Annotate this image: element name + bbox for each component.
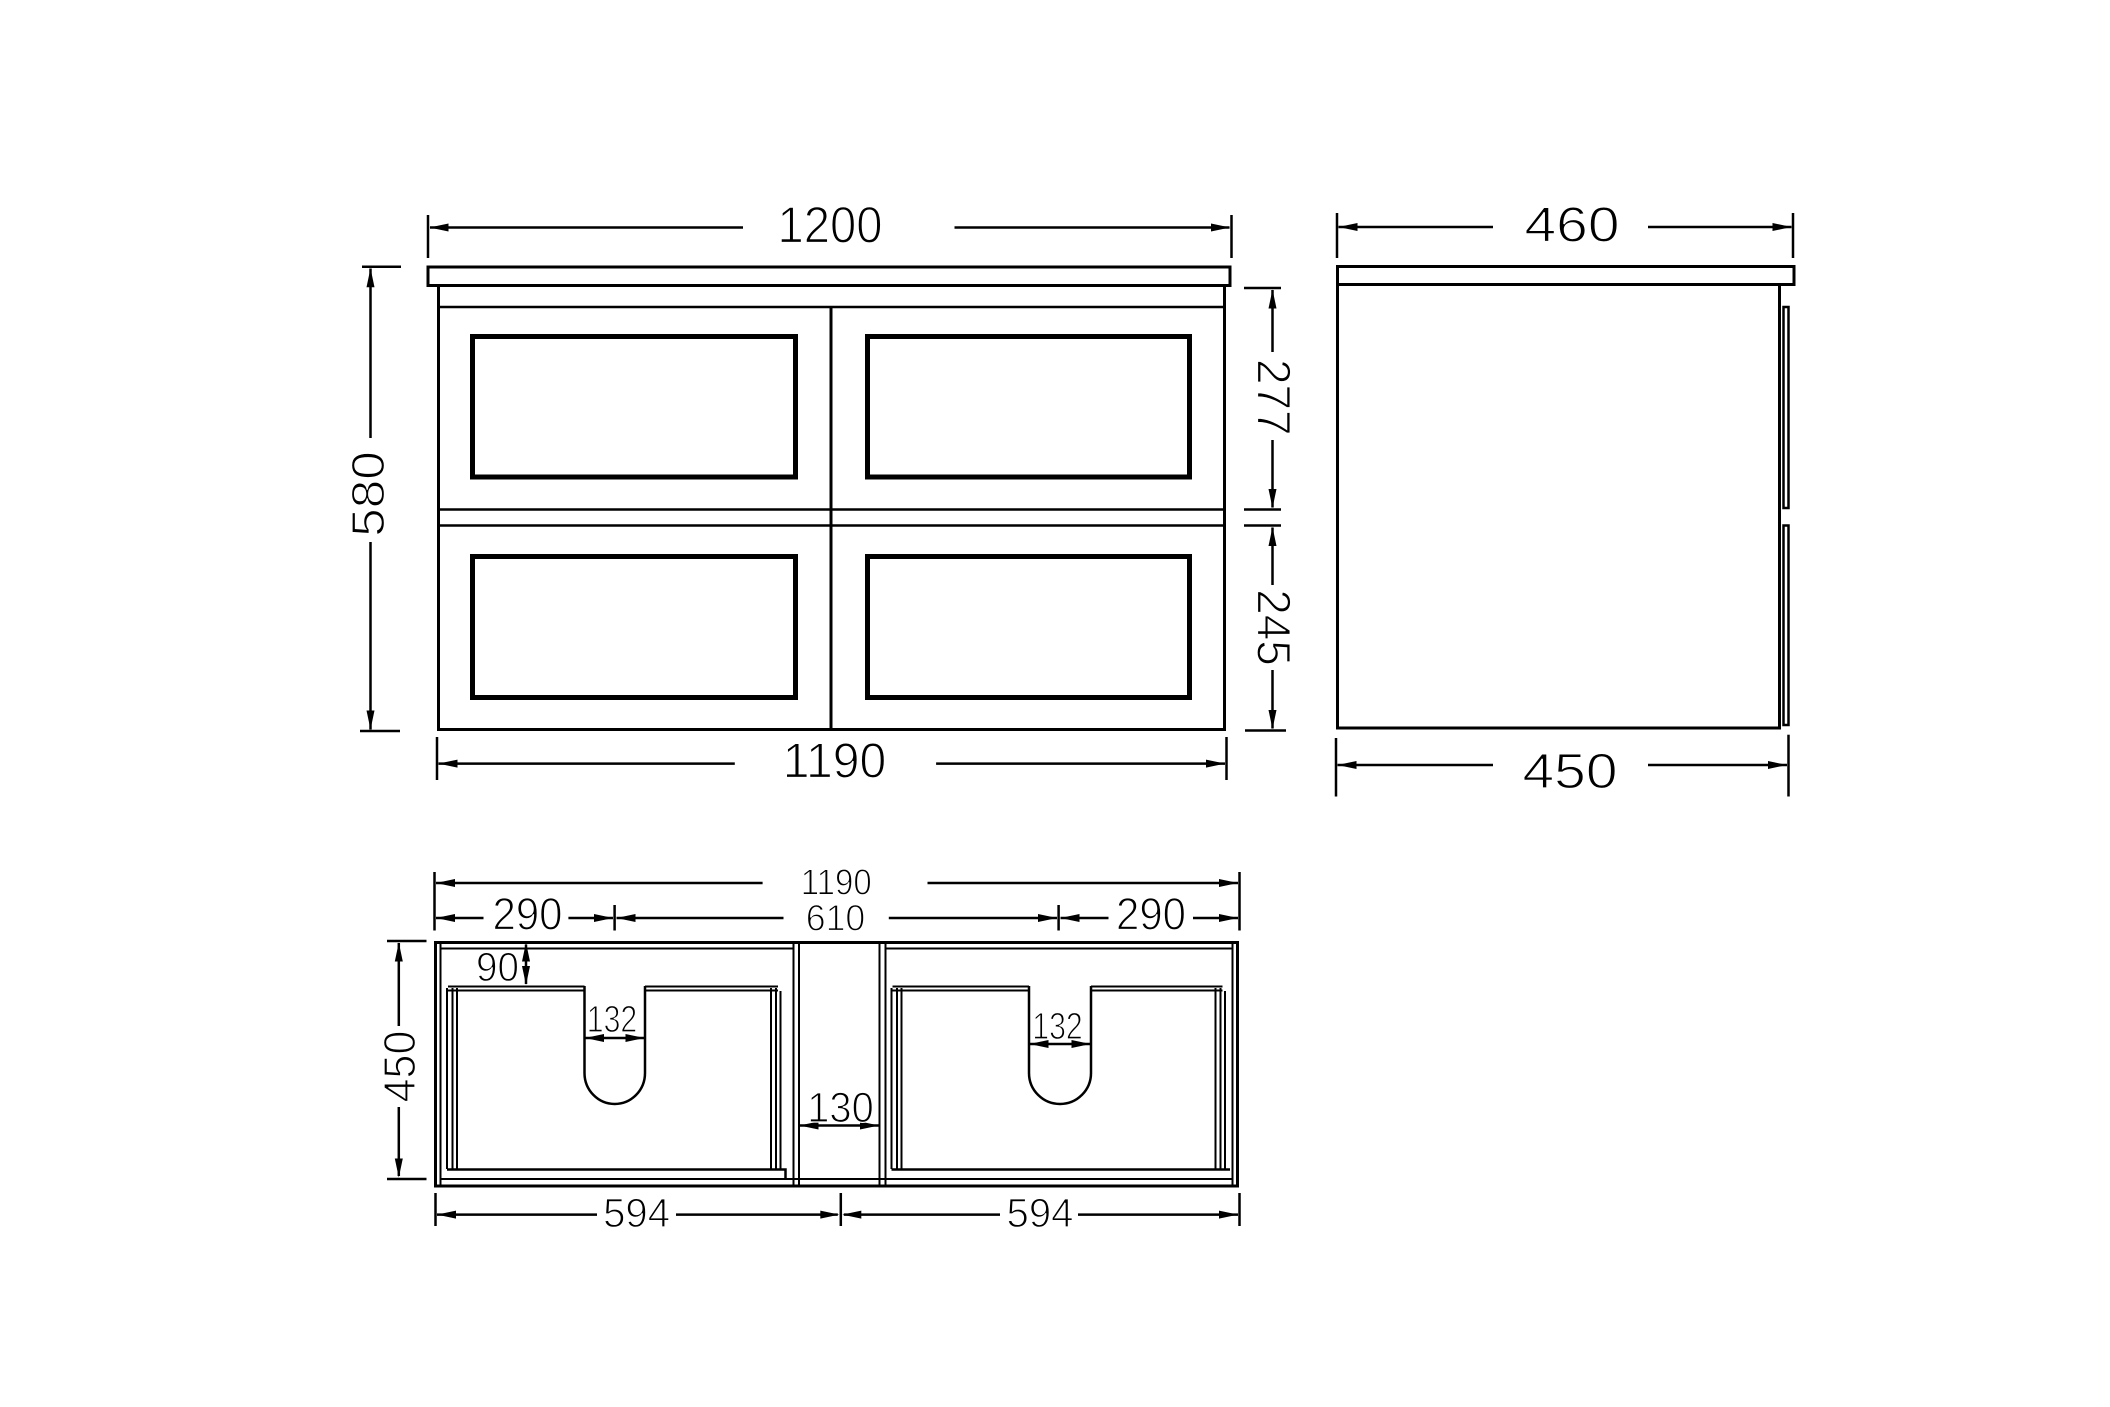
svg-text:290: 290	[493, 889, 563, 940]
svg-text:580: 580	[342, 451, 394, 537]
svg-text:290: 290	[1116, 889, 1186, 940]
svg-text:450: 450	[1523, 744, 1618, 799]
svg-text:132: 132	[1032, 1006, 1083, 1048]
svg-text:90: 90	[476, 944, 519, 990]
svg-text:610: 610	[806, 898, 866, 939]
svg-text:277: 277	[1247, 359, 1300, 436]
svg-text:1200: 1200	[778, 195, 883, 253]
svg-text:1190: 1190	[801, 862, 872, 903]
svg-text:450: 450	[374, 1031, 425, 1103]
svg-text:132: 132	[587, 999, 638, 1041]
svg-text:594: 594	[1007, 1190, 1074, 1236]
svg-text:1190: 1190	[783, 734, 887, 789]
svg-text:130: 130	[807, 1085, 874, 1132]
svg-text:245: 245	[1247, 589, 1300, 666]
svg-text:460: 460	[1525, 198, 1620, 253]
svg-text:594: 594	[603, 1190, 670, 1236]
